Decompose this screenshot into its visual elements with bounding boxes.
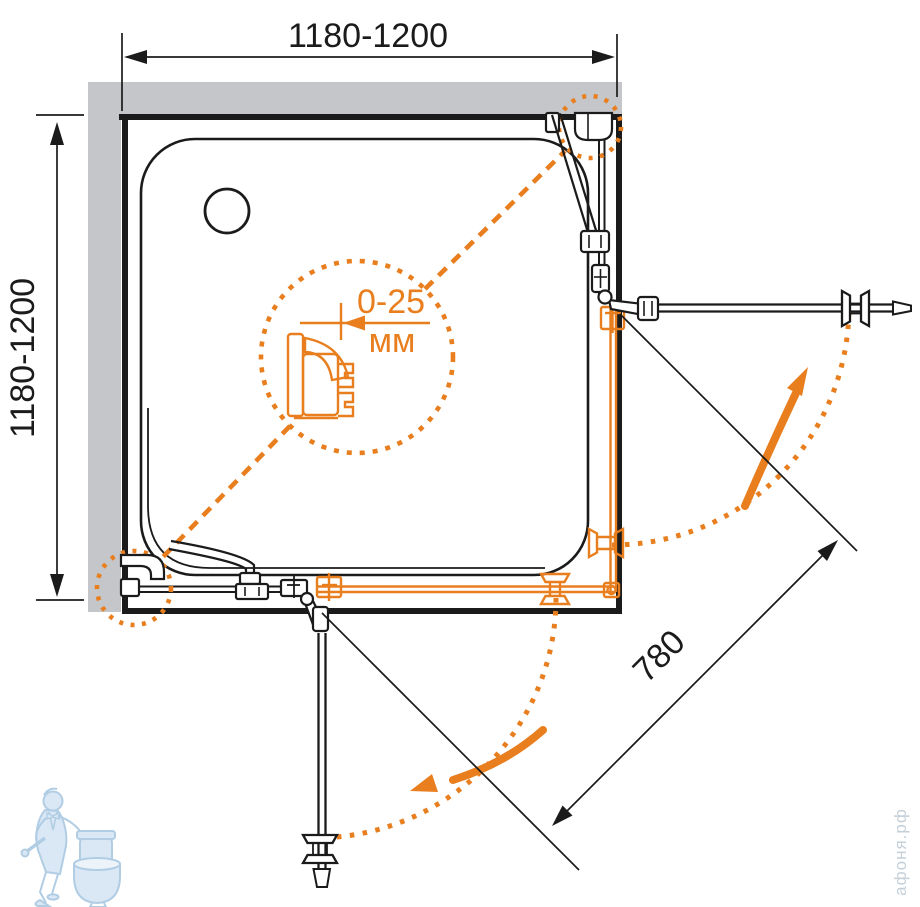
hardware-top-right — [546, 113, 658, 320]
door-edge-cap-bottom — [314, 869, 331, 887]
dimension-diag-line — [560, 548, 830, 818]
toilet-tank-lid — [77, 831, 115, 839]
door-right-open — [658, 291, 911, 326]
support-bar-clamp — [581, 231, 609, 252]
swing-arrow-right — [745, 393, 796, 506]
accent-stroke-layer — [97, 96, 849, 838]
wall-top — [88, 82, 622, 114]
dimension-diag-ext-top — [620, 314, 857, 551]
hinge-pivot-icon — [599, 291, 612, 304]
watermark-site-label: афоня.рф — [891, 808, 910, 896]
support-arm-foot — [240, 573, 260, 584]
door-right-open-handle-icon — [842, 291, 850, 326]
detail-leader-top-right — [425, 151, 565, 289]
toilet-seat — [74, 858, 120, 870]
arrow-left-icon — [124, 50, 147, 64]
dimension-left — [36, 115, 84, 600]
swing-arc-bottom-door — [315, 598, 556, 838]
door-right-handle-icon — [589, 529, 597, 557]
support-arm — [169, 549, 246, 575]
dimension-diagonal-label: 780 — [626, 623, 693, 690]
wall-profile — [575, 113, 612, 140]
detail-leader-bottom-left — [159, 426, 290, 561]
detail-range-label: 0-25 — [357, 283, 425, 321]
wall-surfaces — [88, 82, 622, 612]
swing-arrowhead-right-icon — [787, 367, 808, 396]
door-bottom-open-handle-icon — [303, 835, 337, 843]
arrow-right-icon — [592, 50, 615, 64]
support-arm-clamp — [236, 584, 268, 599]
detail-unit-label: мм — [369, 322, 416, 360]
door-edge-cap — [893, 302, 911, 315]
hinge-plate-bottom — [313, 607, 328, 631]
arrow-up-icon — [50, 122, 64, 145]
door-bottom-open-handle-icon — [303, 855, 337, 863]
plumber-shoe — [35, 900, 49, 906]
pipe-wrench-head — [22, 850, 29, 857]
wall-bracket-bottom — [121, 579, 139, 596]
dimension-left-label: 1180-1200 — [4, 278, 42, 438]
enclosure-frame — [119, 114, 622, 614]
watermark-plumber — [22, 789, 121, 907]
dimension-top-label: 1180-1200 — [288, 17, 448, 55]
swing-arrowhead-bottom-icon — [410, 774, 438, 792]
tray-inner-rim — [148, 408, 545, 568]
plumber-shoe — [48, 894, 59, 899]
door-right-open-handle-icon — [861, 291, 869, 326]
accent-fill-layer: 0-25 мм — [343, 283, 808, 792]
hinge-plate — [638, 297, 658, 320]
profile-cross-section — [288, 334, 353, 418]
shower-enclosure-plan-drawing: 1180-1200 1180-1200 — [0, 0, 920, 907]
plumber-head — [44, 792, 63, 811]
drain-icon — [205, 189, 249, 233]
diagram-canvas: 1180-1200 1180-1200 — [0, 0, 920, 907]
door-bottom-closed — [316, 573, 619, 604]
hinge-pivot-icon — [301, 593, 313, 605]
door-bottom-open — [303, 633, 337, 887]
arrow-down-icon — [50, 574, 64, 597]
wall-left — [88, 82, 121, 612]
dimension-diag-ext-bottom — [322, 613, 579, 870]
door-bottom-handle-icon — [541, 574, 569, 582]
